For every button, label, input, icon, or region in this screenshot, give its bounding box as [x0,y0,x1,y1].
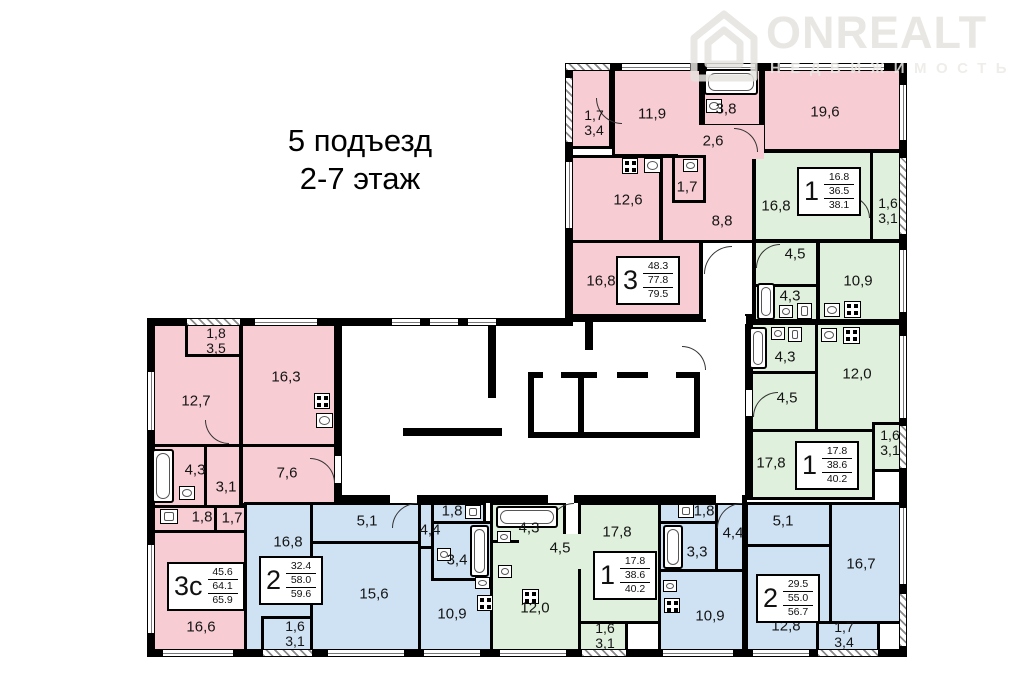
stove-icon [622,158,638,174]
apartment-areas: 17.8 38.6 40.2 [822,445,852,486]
bathtub-icon [470,525,489,577]
bathtub-icon [757,283,775,320]
hallway-wall [488,322,496,398]
balcony-glazing [263,649,312,657]
balcony-glazing [566,63,610,71]
room-label: 2,6 [703,133,724,150]
elevator-shaft-large [578,372,700,438]
window [468,319,496,325]
window [430,319,458,325]
sink-icon [821,328,837,342]
elevator-door-gap [648,372,676,378]
window [255,319,317,325]
apartment-card-1c: 1 17.8 38.6 40.2 [593,551,657,600]
room-label: 12,6 [613,192,642,209]
apartment-type: 3 [623,265,638,296]
stairs-wall [403,428,502,436]
room-label: 4,4 [420,522,441,539]
apartment-areas: 45.6 64.1 65.9 [208,566,238,607]
apartment-type: 1 [802,450,817,481]
balcony-glazing [899,594,907,646]
window [163,650,233,656]
window [392,319,420,325]
stove-icon [314,393,330,409]
apartment-areas: 32.4 58.0 59.6 [286,560,316,601]
room-label: 1,7 [677,179,698,196]
room-label: 16,8 [761,198,790,215]
room-label: 16,8 [586,273,615,290]
apartment-type: 3с [174,571,203,602]
room-label: 3,8 [716,101,737,118]
page-title: 5 подъезд 2-7 этаж [232,122,488,198]
door-gap-a3c [335,456,341,483]
sink-icon [779,305,793,318]
apartment-type: 2 [763,583,778,614]
room-label: 10,9 [843,273,872,290]
room-label: 5,1 [773,513,794,530]
window [566,162,572,228]
window [500,650,566,656]
door-gap-a2b [716,495,742,503]
toilet-icon [788,327,802,342]
room-label: 11,9 [638,106,666,123]
window [148,545,154,633]
sink-icon [644,158,661,173]
window [900,336,906,418]
sink-icon [771,327,785,340]
room-label: 1,8 [442,503,463,520]
room-label: 4,3 [780,288,801,305]
sink-icon [683,159,698,172]
room-label-a3-balcony: 1,7 3,4 [584,108,603,138]
room-label: 17,8 [756,455,785,472]
hallway-wall-stub [585,322,593,350]
bathtub-icon [152,449,174,503]
wall-topblock-bottom [565,314,702,322]
stove-icon [477,595,493,611]
room-label: 1,7 [222,510,243,527]
room-label: 12,7 [181,393,210,410]
room-label: 4,5 [550,540,571,557]
room-label: 3,1 [216,479,237,496]
room-label: 10,9 [437,606,466,623]
toilet-icon [797,303,812,319]
sink-icon [475,577,490,589]
room-label: 7,6 [277,465,298,482]
apartment-card-1a: 1 16.8 36.5 38.1 [797,167,861,216]
room-label: 1,8 [192,509,213,526]
apartment-card-1b: 1 17.8 38.6 40.2 [795,441,859,490]
room-label-a1b-balcony: 1,6 3,1 [880,428,899,458]
room-label: 4,5 [777,390,798,407]
room-label: 17,8 [602,524,631,541]
window [780,64,884,70]
window [900,250,906,312]
stove-icon [843,327,860,344]
window [900,85,906,140]
apartment-type: 1 [600,560,615,591]
toilet-icon [678,504,694,518]
elevator-shaft-small [528,372,584,438]
room-label: 12,0 [520,600,549,617]
room-label: 4,3 [519,520,540,537]
door-gap-a1c [548,495,574,503]
room-label: 3,3 [687,544,708,561]
title-line-1: 5 подъезд [232,122,488,160]
room-label: 15,6 [359,586,388,603]
sink-icon [498,565,512,578]
sink-icon [497,531,511,543]
window [622,64,690,70]
apartment-areas: 29.5 55.0 56.7 [783,578,813,619]
window [328,650,404,656]
room-label: 4,3 [775,349,796,366]
elevator-door-gap [543,372,561,378]
apartment-areas: 17.8 38.6 40.2 [620,555,650,596]
watermark-brand: ONREALT [766,8,1016,58]
room-a3c-hall-31 [204,444,242,508]
room-label: 16,3 [271,369,300,386]
sink-icon [316,413,333,428]
balcony-glazing [899,426,907,468]
room-label-a1a-balcony: 1,6 3,1 [878,196,897,226]
room-label-a2b-balcony: 1,7 3,4 [834,620,853,650]
balcony-glazing [818,649,878,657]
sink-icon [663,580,677,592]
room-label: 12,0 [842,366,871,383]
room-label: 4,3 [185,462,206,479]
window [900,508,906,584]
apartment-card-2a: 2 32.4 58.0 59.6 [259,556,323,605]
room-label: 16,7 [846,556,875,573]
toilet-icon [160,509,178,524]
balcony-glazing [899,158,907,234]
floor-plan: 5 подъезд 2-7 этаж [0,0,1024,674]
room-label: 19,6 [810,104,839,121]
room-label: 16,6 [186,619,215,636]
door-gap-a2a [390,495,417,503]
apartment-areas: 16.8 36.5 38.1 [824,171,854,212]
apartment-card-3c: 3с 45.6 64.1 65.9 [167,562,245,611]
room-label-a1c-balcony: 1,6 3,1 [595,621,614,651]
balcony-glazing [565,78,573,142]
bathtub-icon [704,69,758,95]
room-label: 4,4 [723,525,744,542]
room-label: 5,1 [357,513,378,530]
apartment-card-3: 3 48.3 77.8 79.5 [616,256,680,305]
bathtub-icon [663,525,683,569]
room-label: 10,9 [695,608,724,625]
room-label-a3c-balcony: 1,8 3,5 [206,326,225,356]
window [148,372,154,430]
room-label: 4,5 [785,246,806,263]
apartment-areas: 48.3 77.8 79.5 [643,260,673,301]
room-label-a2a-balcony: 1,6 3,1 [285,619,304,649]
title-line-2: 2-7 этаж [232,160,488,198]
elevator-door-gap [597,372,617,378]
sink-icon [179,486,195,500]
window [424,650,480,656]
room-label: 3,4 [447,552,468,569]
bathtub-icon [749,327,767,369]
stove-icon [844,301,861,318]
door-gap-vestibule [706,316,746,324]
window [753,650,809,656]
door-arc [682,346,706,370]
door-gap-a1b [746,390,752,416]
room-label: 1,8 [694,503,715,520]
sink-icon [824,303,840,317]
apartment-type: 1 [804,176,819,207]
window [663,650,733,656]
toilet-icon [465,505,481,519]
room-label: 8,8 [712,213,733,230]
room-label: 16,8 [273,534,302,551]
stove-icon [664,598,680,613]
apartment-type: 2 [266,565,281,596]
apartment-card-2b: 2 29.5 55.0 56.7 [756,574,820,623]
